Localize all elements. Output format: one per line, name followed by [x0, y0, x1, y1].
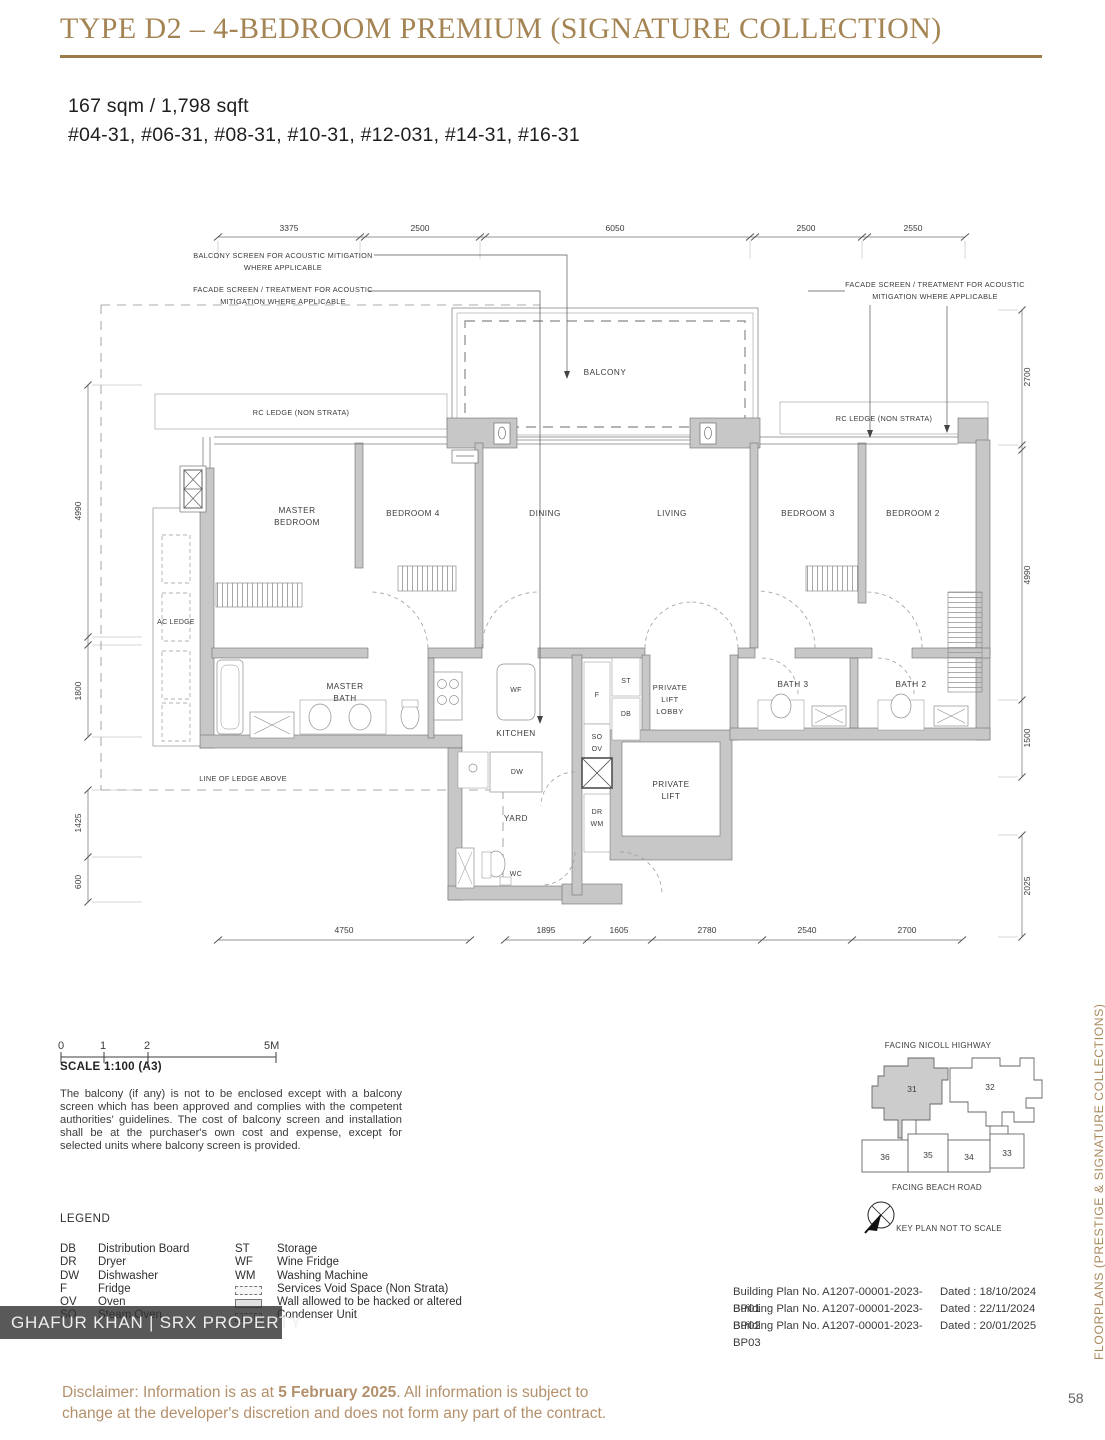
label-wm: WM [590, 821, 603, 828]
ac-ledge [153, 508, 200, 746]
room-bath3: BATH 3 [777, 680, 808, 689]
key-plan: FACING NICOLL HIGHWAY FACING BEACH ROAD … [830, 1030, 1080, 1250]
room-lift-1: PRIVATE [652, 780, 689, 789]
room-balcony: BALCONY [584, 368, 627, 377]
label-st: ST [621, 678, 631, 685]
dim-right-1: 2700 [1022, 367, 1032, 386]
room-master-bath-2: BATH [333, 694, 356, 703]
legend-label: Storage [277, 1243, 317, 1256]
keyplan-label-31: 31 [907, 1084, 917, 1094]
label-dr: DR [592, 809, 603, 816]
dim-right-3: 1500 [1022, 728, 1032, 747]
dim-top-5: 2550 [904, 223, 923, 233]
facade-note-right-line1: FACADE SCREEN / TREATMENT FOR ACOUSTIC [845, 280, 1025, 289]
dim-top-4: 2500 [797, 223, 816, 233]
legend-label: Washing Machine [277, 1270, 368, 1283]
scale-label: SCALE 1:100 (A3) [60, 1061, 162, 1073]
condenser-unit-box [180, 466, 206, 512]
rc-ledge-label-right: RC LEDGE (NON STRATA) [836, 414, 932, 423]
unit-numbers: #04-31, #06-31, #08-31, #10-31, #12-031,… [68, 121, 580, 150]
keyplan-note: KEY PLAN NOT TO SCALE [896, 1224, 1002, 1233]
legend: LEGEND DBDistribution Board DRDryer DWDi… [60, 1213, 620, 1241]
label-dw: DW [511, 769, 523, 776]
dim-top-2: 2500 [411, 223, 430, 233]
room-lobby-1: PRIVATE [653, 683, 687, 692]
legend-title: LEGEND [60, 1213, 620, 1225]
building-plan-row: Building Plan No. A1207-00001-2023-BP03D… [733, 1318, 1036, 1335]
sidebar-section-label: FLOORPLANS (PRESTIGE & SIGNATURE COLLECT… [1092, 1030, 1105, 1360]
legend-abbr: ST [235, 1243, 277, 1256]
label-ov: OV [592, 746, 603, 753]
room-lift-2: LIFT [662, 792, 681, 801]
line-of-ledge-label: LINE OF LEDGE ABOVE [199, 774, 287, 783]
scale-tick-2: 2 [144, 1040, 150, 1052]
dim-right-4: 2025 [1022, 876, 1032, 895]
watermark: GHAFUR KHAN | SRX PROPERTY [0, 1306, 282, 1339]
label-f: F [595, 692, 600, 699]
dim-bottom-5: 2540 [798, 925, 817, 935]
page-number: 58 [1068, 1390, 1084, 1406]
title-divider [60, 55, 1042, 58]
room-bedroom4: BEDROOM 4 [386, 509, 440, 518]
dim-right-2: 4990 [1022, 565, 1032, 584]
room-master-bedroom-1: MASTER [278, 506, 315, 515]
keyplan-label-36: 36 [880, 1152, 890, 1162]
balcony-note: The balcony (if any) is not to be enclos… [60, 1088, 402, 1153]
page-title: TYPE D2 – 4-BEDROOM PREMIUM (SIGNATURE C… [60, 12, 1050, 46]
legend-abbr: DB [60, 1243, 98, 1256]
rc-ledge-label-left: RC LEDGE (NON STRATA) [253, 408, 349, 417]
scale-tick-5m: 5M [264, 1040, 279, 1052]
scale-tick-1: 1 [100, 1040, 106, 1052]
dim-left-1: 4990 [73, 501, 83, 520]
keyplan-label-32: 32 [985, 1082, 995, 1092]
legend-abbr: WF [235, 1256, 277, 1269]
room-master-bedroom-2: BEDROOM [274, 518, 320, 527]
building-plan-list: Building Plan No. A1207-00001-2023-BP01D… [733, 1284, 1036, 1335]
dim-bottom-4: 2780 [698, 925, 717, 935]
room-lobby-3: LOBBY [656, 707, 684, 716]
keyplan-label-35: 35 [923, 1150, 933, 1160]
services-void-swatch [235, 1283, 277, 1296]
legend-label: Distribution Board [98, 1243, 189, 1256]
building-plan-row: Building Plan No. A1207-00001-2023-BP01D… [733, 1284, 1036, 1301]
room-living: LIVING [657, 509, 687, 518]
building-plan-row: Building Plan No. A1207-00001-2023-BP02D… [733, 1301, 1036, 1318]
services-void-box [582, 758, 612, 788]
footer-disclaimer: Disclaimer: Information is as at 5 Febru… [62, 1382, 624, 1424]
keyplan-block-32 [950, 1058, 1042, 1126]
dim-bottom-2: 1895 [537, 925, 556, 935]
room-wc: WC [510, 871, 523, 878]
room-bedroom2: BEDROOM 2 [886, 509, 940, 518]
legend-label: Wall allowed to be hacked or altered [277, 1296, 462, 1309]
dim-left-3: 1425 [73, 813, 83, 832]
label-db: DB [621, 711, 631, 718]
keyplan-facing-bottom: FACING BEACH ROAD [892, 1183, 982, 1192]
facade-note-left-line1: FACADE SCREEN / TREATMENT FOR ACOUSTIC [193, 285, 373, 294]
compass-icon [865, 1202, 894, 1233]
keyplan-label-34: 34 [964, 1152, 974, 1162]
furniture [216, 566, 982, 888]
legend-label: Dishwasher [98, 1270, 158, 1283]
dim-bottom-1: 4750 [335, 925, 354, 935]
scale-tick-0: 0 [58, 1040, 64, 1052]
dim-top-1: 3375 [280, 223, 299, 233]
legend-abbr: WM [235, 1270, 277, 1283]
windows [203, 437, 958, 468]
scale-bar: 0 1 2 5M [55, 1038, 295, 1080]
room-master-bath-1: MASTER [326, 682, 363, 691]
legend-label: Services Void Space (Non Strata) [277, 1283, 448, 1296]
label-so: SO [592, 734, 603, 741]
label-wf: WF [510, 687, 521, 694]
disclaimer-date: 5 February 2025 [278, 1384, 396, 1401]
keyplan-label-33: 33 [1002, 1148, 1012, 1158]
dim-top-3: 6050 [606, 223, 625, 233]
ac-ledge-label: AC LEDGE [157, 619, 195, 626]
legend-abbr: DW [60, 1270, 98, 1283]
private-lift-interior [622, 742, 720, 836]
room-yard: YARD [504, 814, 528, 823]
room-bath2: BATH 2 [895, 680, 926, 689]
dim-left-4: 600 [73, 875, 83, 889]
keyplan-facing-top: FACING NICOLL HIGHWAY [885, 1041, 992, 1050]
legend-abbr: F [60, 1283, 98, 1296]
facade-note-right-line2: MITIGATION WHERE APPLICABLE [872, 292, 998, 301]
balcony-screen-note-line1: BALCONY SCREEN FOR ACOUSTIC MITIGATION [193, 251, 372, 260]
legend-label: Fridge [98, 1283, 131, 1296]
room-bedroom3: BEDROOM 3 [781, 509, 835, 518]
floor-plan: 3375 2500 6050 2500 2550 4750 1895 1605 … [0, 195, 1105, 1020]
dim-bottom-3: 1605 [610, 925, 629, 935]
unit-info: 167 sqm / 1,798 sqft #04-31, #06-31, #08… [68, 92, 580, 150]
room-dining: DINING [529, 509, 561, 518]
unit-area: 167 sqm / 1,798 sqft [68, 92, 580, 121]
legend-label: Wine Fridge [277, 1256, 339, 1269]
room-lobby-2: LIFT [661, 695, 678, 704]
dim-bottom-6: 2700 [898, 925, 917, 935]
balcony-screen-note-line2: WHERE APPLICABLE [244, 263, 322, 272]
room-kitchen: KITCHEN [496, 729, 535, 738]
legend-abbr: DR [60, 1256, 98, 1269]
dim-left-2: 1800 [73, 681, 83, 700]
facade-note-left-line2: MITIGATION WHERE APPLICABLE [220, 297, 346, 306]
legend-label: Dryer [98, 1256, 126, 1269]
